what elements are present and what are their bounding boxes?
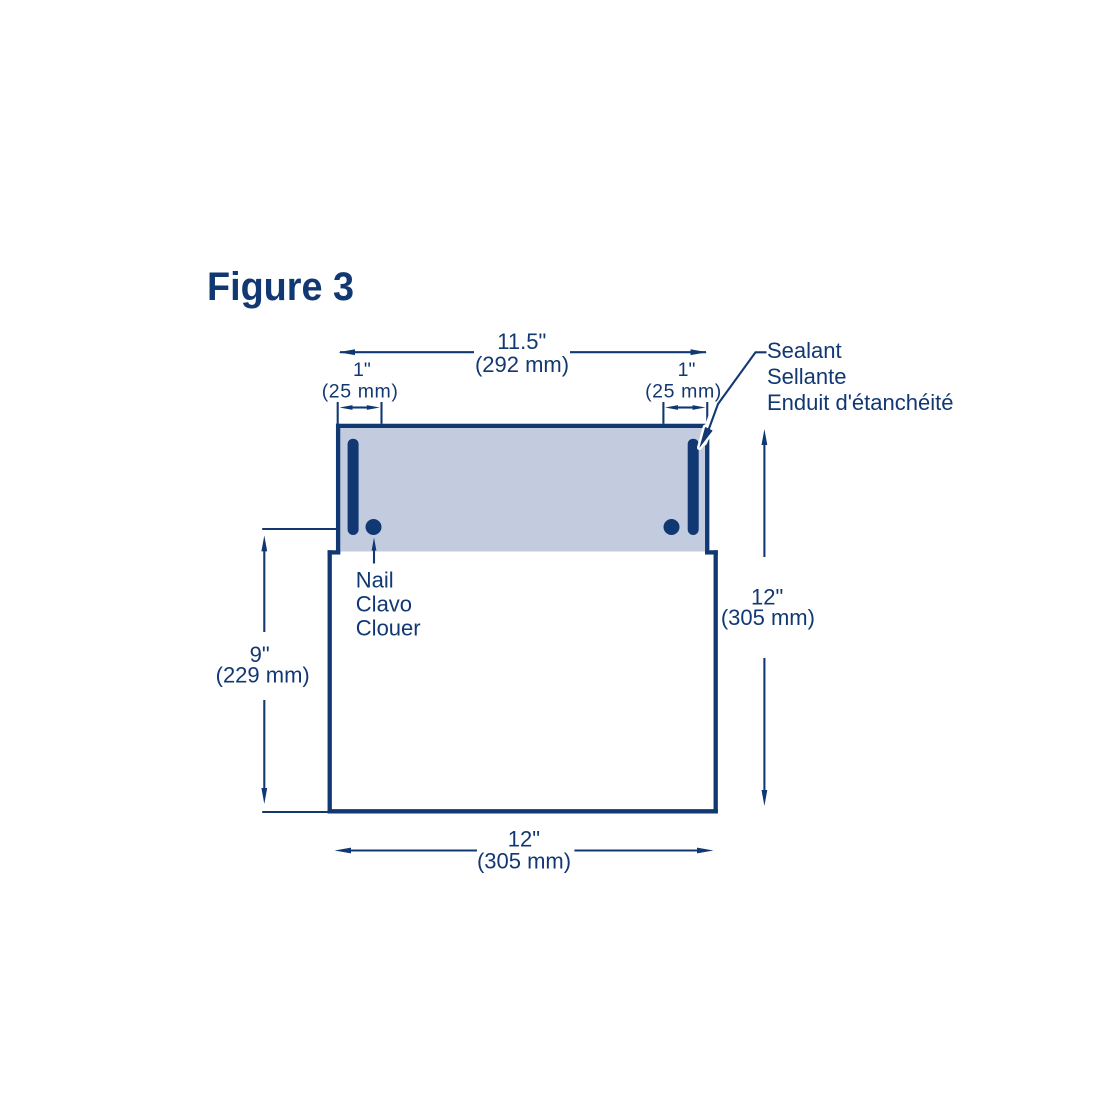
svg-text:Nail: Nail bbox=[356, 568, 394, 593]
svg-text:Enduit d'étanchéité: Enduit d'étanchéité bbox=[767, 390, 953, 415]
svg-text:Figure 3: Figure 3 bbox=[207, 265, 354, 309]
svg-text:Sellante: Sellante bbox=[767, 364, 847, 389]
svg-text:Clouer: Clouer bbox=[356, 616, 421, 641]
svg-text:(25 mm): (25 mm) bbox=[645, 381, 722, 403]
svg-text:(25 mm): (25 mm) bbox=[322, 381, 399, 403]
svg-text:(305 mm): (305 mm) bbox=[477, 849, 571, 874]
svg-text:1": 1" bbox=[353, 359, 371, 381]
svg-text:1": 1" bbox=[678, 359, 696, 381]
svg-text:(292 mm): (292 mm) bbox=[475, 352, 569, 377]
svg-text:11.5": 11.5" bbox=[497, 329, 546, 354]
svg-text:(305 mm): (305 mm) bbox=[721, 605, 815, 630]
svg-text:Sealant: Sealant bbox=[767, 338, 842, 363]
svg-text:(229 mm): (229 mm) bbox=[216, 663, 310, 688]
svg-text:Clavo: Clavo bbox=[356, 592, 412, 617]
